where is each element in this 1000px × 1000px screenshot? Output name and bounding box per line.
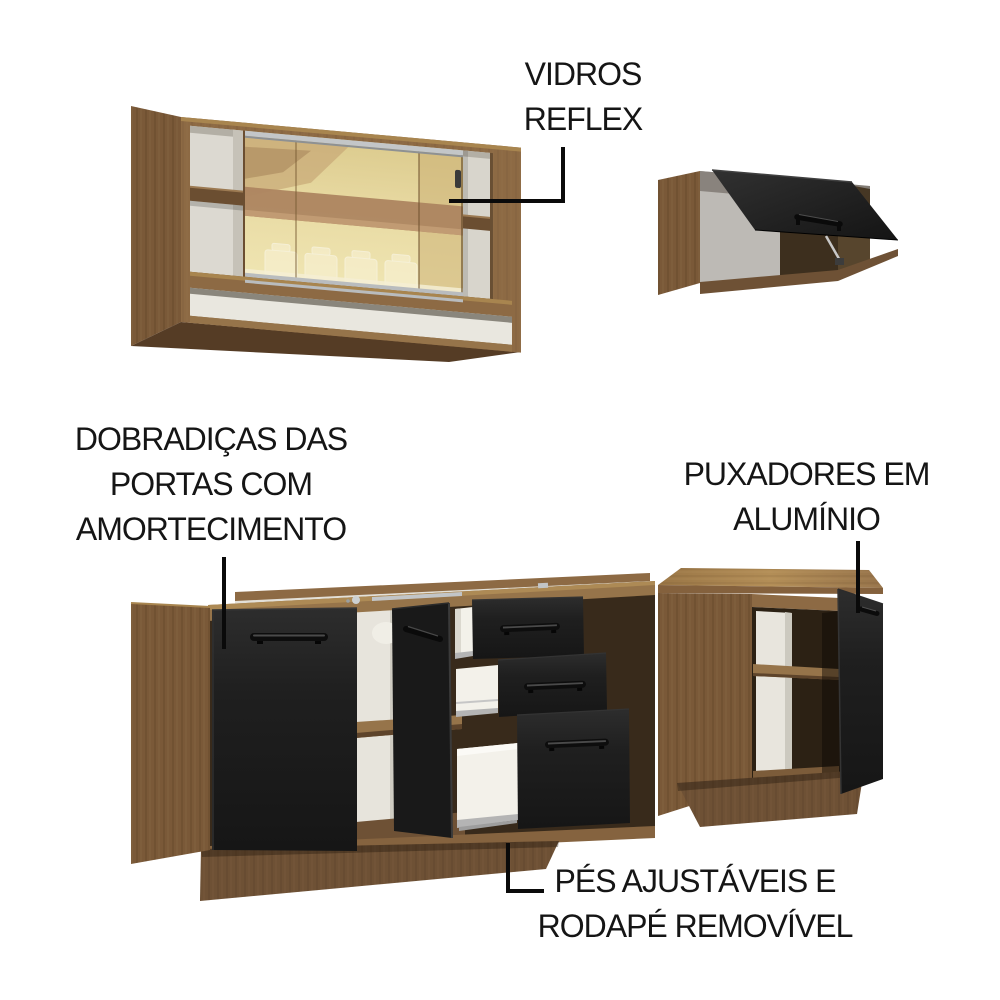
label-line: ALUMÍNIO bbox=[656, 497, 957, 542]
wall-cabinet-glass bbox=[131, 106, 521, 362]
hinge-plate bbox=[352, 596, 360, 604]
callout-line-dobradicas bbox=[222, 557, 226, 649]
callout-line-vidros-vertical bbox=[561, 147, 565, 203]
drawer-3-front bbox=[517, 709, 630, 829]
label-puxadores: PUXADORES EM ALUMÍNIO bbox=[656, 452, 957, 542]
base-cabinet-main bbox=[131, 573, 655, 901]
left-door-closed bbox=[212, 608, 357, 851]
wall-cabinet-flip bbox=[658, 170, 898, 295]
label-dobradicas: DOBRADIÇAS DAS PORTAS COM AMORTECIMENTO bbox=[36, 417, 386, 552]
label-vidros-reflex: VIDROS REFLEX bbox=[433, 52, 733, 142]
callout-line-puxadores bbox=[856, 541, 860, 613]
base-cabinet-right bbox=[658, 568, 883, 827]
label-line: AMORTECIMENTO bbox=[36, 507, 386, 552]
drawer-1 bbox=[455, 597, 584, 659]
label-pes-rodape: PÉS AJUSTÁVEIS E RODAPÉ REMOVÍVEL bbox=[495, 859, 895, 949]
label-line: PORTAS COM bbox=[36, 462, 386, 507]
glass-door-handle bbox=[455, 170, 461, 189]
callout-line-vidros-horizontal bbox=[449, 199, 565, 203]
right-door-open bbox=[838, 589, 883, 794]
label-line: PUXADORES EM bbox=[656, 452, 957, 497]
label-line: REFLEX bbox=[433, 97, 733, 142]
label-line: PÉS AJUSTÁVEIS E bbox=[495, 859, 895, 904]
label-line: RODAPÉ REMOVÍVEL bbox=[495, 904, 895, 949]
middle-door-open bbox=[392, 603, 452, 838]
reflex-glass-door bbox=[245, 131, 463, 297]
label-line: VIDROS bbox=[433, 52, 733, 97]
label-line: DOBRADIÇAS DAS bbox=[36, 417, 386, 462]
